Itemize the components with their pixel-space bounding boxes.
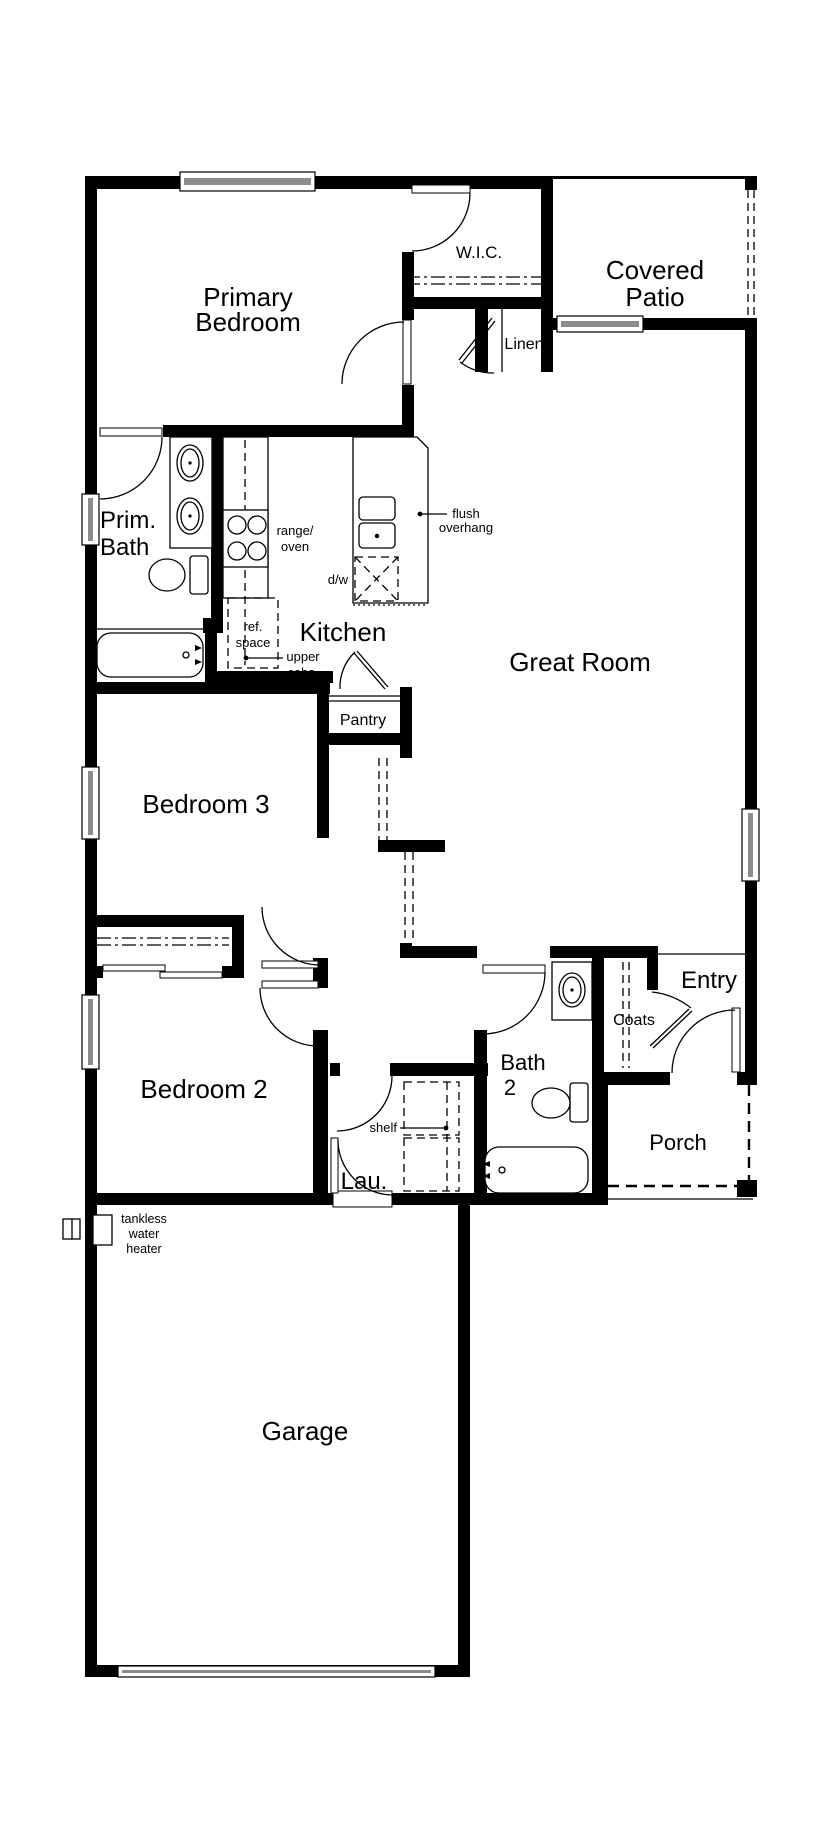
wall-segment	[222, 966, 244, 978]
wall-segment	[402, 297, 553, 309]
label-tankless: tankless	[121, 1212, 167, 1226]
label-bath2: 2	[504, 1075, 516, 1100]
floor-plan: Primary Bedroom W.I.C. Covered Patio Lin…	[0, 0, 840, 1828]
prim-bath-door	[100, 428, 162, 499]
label-ref-space: ref.	[244, 619, 263, 634]
label-tankless: heater	[126, 1242, 161, 1256]
leader-lines	[244, 512, 449, 1131]
prim-bath-vanity	[170, 437, 212, 548]
prim-bath-toilet	[149, 556, 208, 594]
wall-segment	[475, 309, 488, 372]
kitchen-island	[353, 437, 428, 605]
wall-segment	[597, 1083, 608, 1197]
label-coats: Coats	[613, 1012, 655, 1029]
wall-segment	[163, 425, 414, 437]
wall-segment	[737, 1180, 757, 1197]
dryer-box	[404, 1138, 459, 1191]
wall-segment	[402, 385, 414, 429]
doors	[100, 185, 740, 1207]
wall-segment	[378, 840, 445, 852]
wall-segment	[604, 946, 647, 958]
window	[82, 494, 99, 545]
window	[82, 767, 99, 839]
label-primary-bedroom: Bedroom	[195, 307, 301, 337]
shelf-dot	[444, 1126, 449, 1131]
bedroom-closet-bypass-doors	[103, 965, 222, 978]
washer-box	[404, 1082, 459, 1135]
label-bedroom3: Bedroom 3	[142, 789, 269, 819]
label-shelf: shelf	[370, 1120, 398, 1135]
label-bath2: Bath	[500, 1050, 545, 1075]
wall-segment	[745, 318, 757, 1085]
wic-door	[412, 185, 470, 251]
label-tankless: water	[128, 1227, 160, 1241]
wall-segment	[85, 915, 244, 927]
wall-segment	[330, 1063, 340, 1076]
primary-bedroom-door	[342, 320, 411, 384]
wall-segment	[317, 733, 412, 745]
wall-segment	[211, 437, 223, 620]
wall-segment	[85, 176, 553, 189]
bath2-toilet	[532, 1083, 588, 1122]
window	[180, 172, 315, 191]
wall-segment	[400, 687, 412, 758]
garage-door	[118, 1666, 435, 1677]
wall-segment	[745, 176, 757, 190]
wall-segment	[737, 1072, 757, 1085]
label-flush-overhang: overhang	[439, 520, 493, 535]
range-oven	[223, 510, 268, 567]
wall-segment	[400, 943, 412, 958]
bath2-door	[483, 965, 545, 1034]
window	[742, 809, 759, 881]
label-upper-cabs: cabs.	[287, 665, 318, 680]
label-wic: W.I.C.	[456, 243, 502, 262]
flush-overhang-dot	[418, 512, 423, 517]
label-laundry: Lau.	[341, 1168, 388, 1195]
wall-segment	[412, 946, 477, 958]
label-covered-patio: Covered	[606, 255, 704, 285]
label-garage: Garage	[262, 1416, 349, 1446]
label-flush-overhang: flush	[452, 506, 479, 521]
pantry-door	[340, 651, 388, 689]
label-kitchen: Kitchen	[300, 617, 387, 647]
wall-segment	[313, 1030, 328, 1197]
bath2-vanity	[552, 962, 592, 1020]
wall-segment	[392, 1193, 608, 1205]
walls	[85, 176, 757, 1677]
label-bedroom2: Bedroom 2	[140, 1074, 267, 1104]
upper-cabs-dot	[244, 656, 249, 661]
label-dw: d/w	[328, 572, 349, 587]
label-entry: Entry	[681, 967, 737, 994]
label-range-oven: oven	[281, 539, 309, 554]
wall-segment	[458, 1205, 470, 1677]
wall-segment	[390, 1063, 488, 1076]
wall-segment	[85, 1193, 333, 1205]
prim-bath-tub	[97, 633, 203, 677]
wall-segment	[647, 946, 658, 990]
wall-segment	[553, 176, 757, 179]
bath2-tub	[483, 1147, 588, 1193]
label-prim-bath: Prim.	[100, 507, 156, 534]
label-upper-cabs: upper	[286, 649, 320, 664]
label-prim-bath: Bath	[100, 534, 149, 561]
wall-segment	[317, 694, 329, 838]
wall-segment	[402, 252, 414, 320]
label-linen: Linen	[504, 336, 543, 353]
wall-segment	[85, 966, 103, 978]
label-covered-patio: Patio	[625, 282, 684, 312]
label-range-oven: range/	[277, 523, 314, 538]
wall-segment	[85, 682, 330, 694]
front-door	[672, 1008, 740, 1073]
floor-plan-page: Primary Bedroom W.I.C. Covered Patio Lin…	[0, 0, 840, 1828]
window	[557, 316, 643, 332]
label-porch: Porch	[649, 1130, 706, 1155]
label-ref-space: space	[236, 635, 271, 650]
bedroom2-door	[260, 981, 318, 1046]
window	[82, 995, 99, 1069]
label-great-room: Great Room	[509, 647, 651, 677]
label-pantry: Pantry	[340, 712, 386, 729]
bedroom3-door	[262, 907, 320, 968]
coats-door	[650, 992, 692, 1048]
